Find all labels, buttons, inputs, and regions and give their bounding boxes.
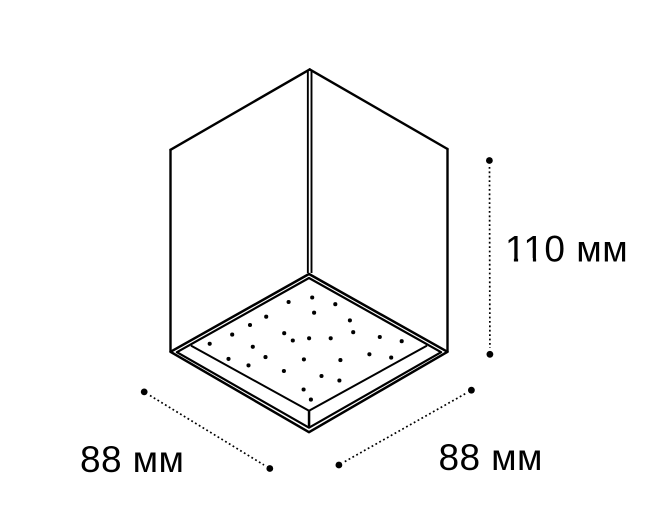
svg-text:88 мм: 88 мм [439,437,543,478]
svg-text:110 мм: 110 мм [505,229,628,270]
svg-text:88 мм: 88 мм [80,439,184,480]
